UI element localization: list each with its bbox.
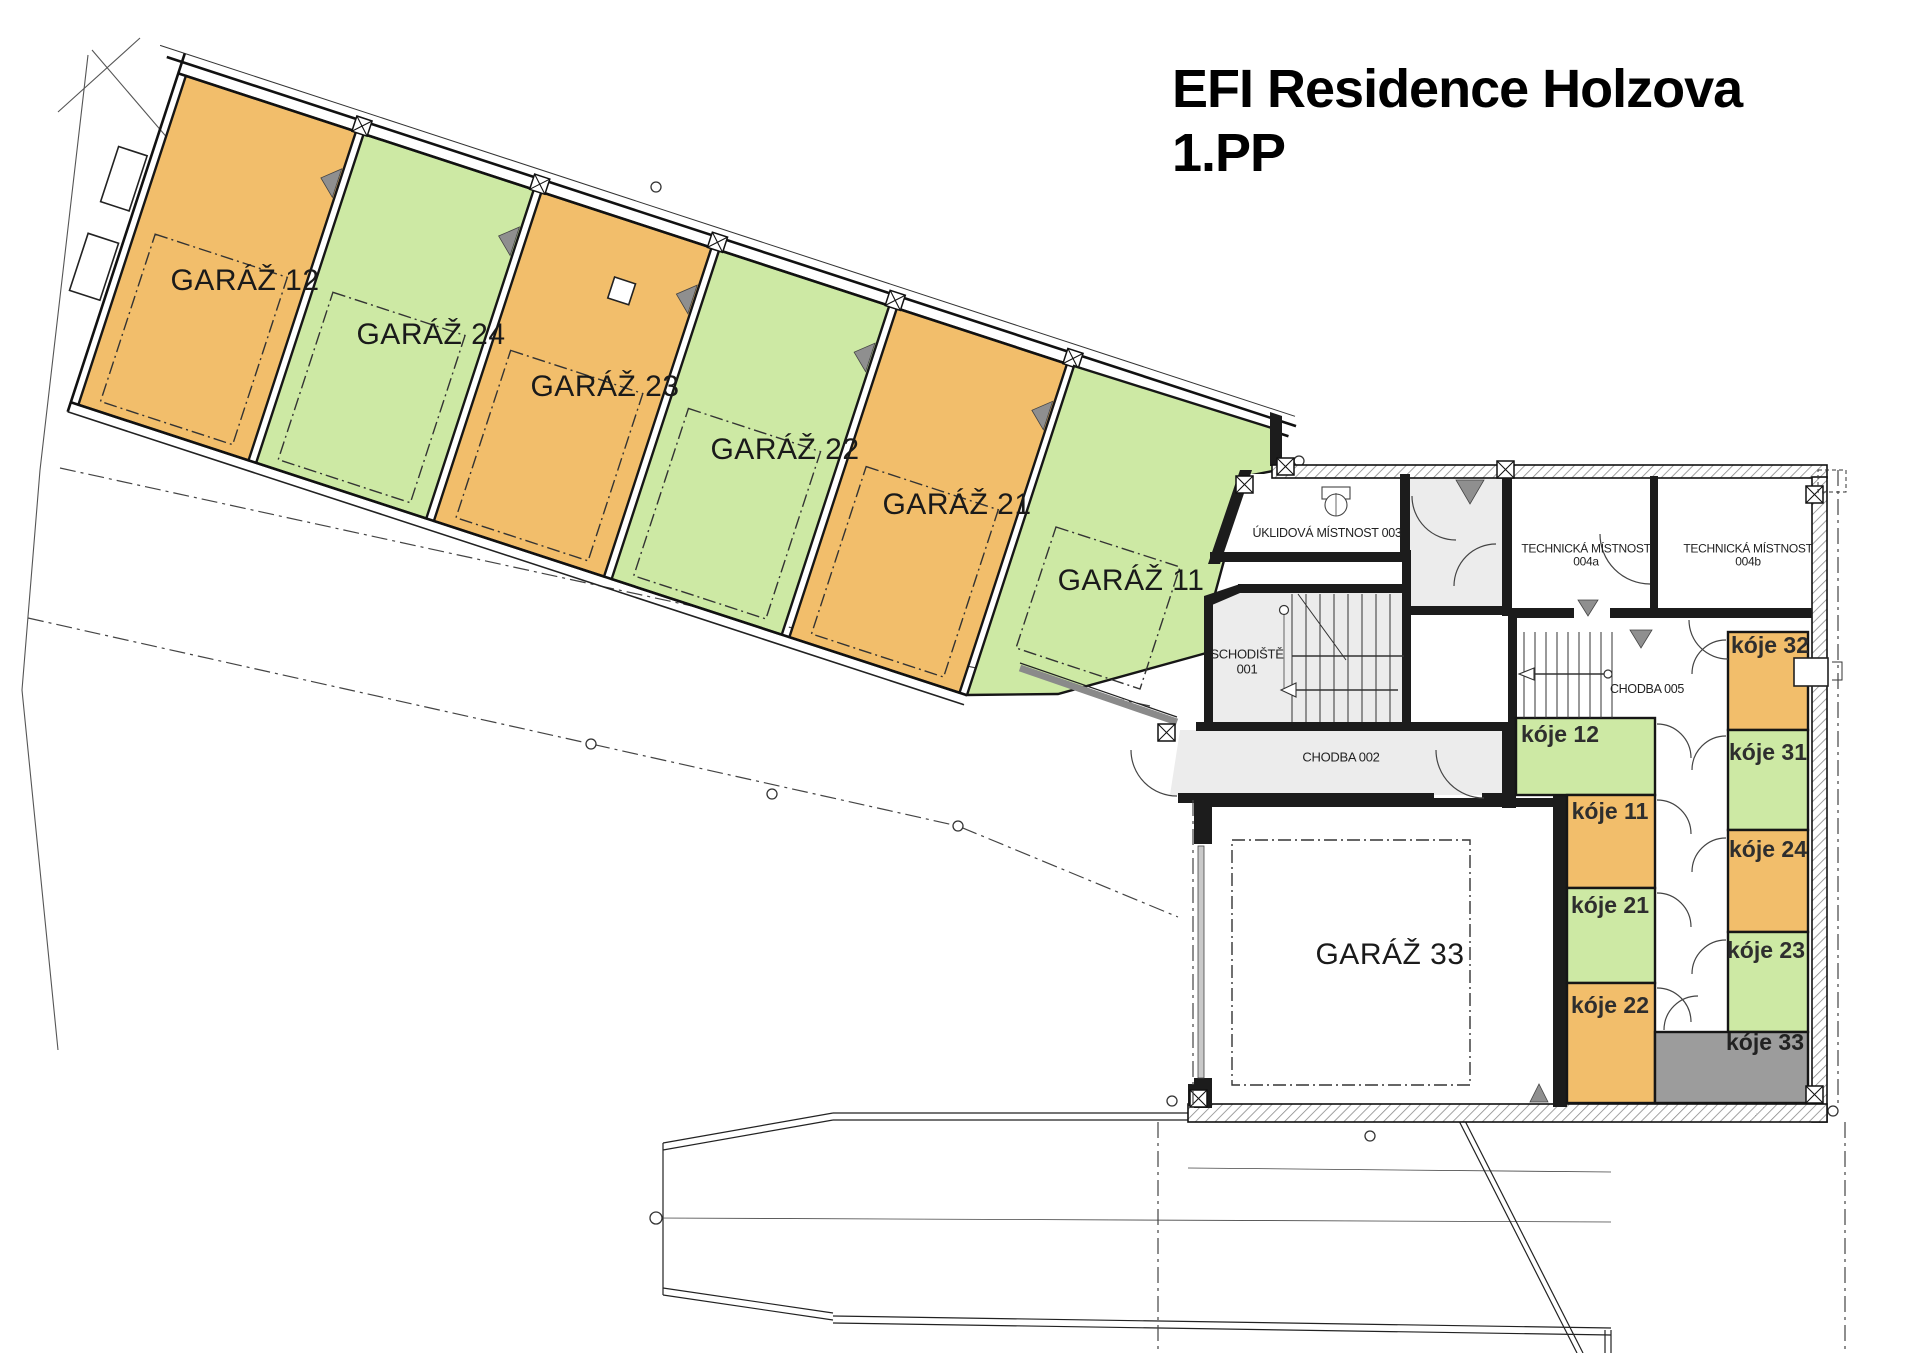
koje-33-area (1655, 1032, 1808, 1103)
floorplan-page: EFI Residence Holzova 1.PP GARÁŽ 12 GARÁ… (0, 0, 1914, 1353)
staircase-005 (1519, 632, 1612, 718)
koje-12-area (1516, 718, 1655, 795)
driveway-ramp (650, 1113, 1845, 1353)
chodba002-floor (1170, 730, 1504, 795)
koje-11-area (1567, 795, 1655, 888)
garage-33-door-panel (1198, 846, 1204, 1078)
koje-21-area (1567, 888, 1655, 983)
koje-24-area (1728, 830, 1808, 932)
koje-23-area (1728, 932, 1808, 1032)
page-title-line2: 1.PP (1172, 122, 1285, 184)
floorplan-drawing (0, 0, 1914, 1353)
koje-22-area (1567, 983, 1655, 1103)
koje-32-niche (1794, 658, 1828, 686)
page-title-line1: EFI Residence Holzova (1172, 58, 1742, 120)
koje-31-area (1728, 730, 1808, 830)
garage-33-floor (1210, 806, 1556, 1106)
